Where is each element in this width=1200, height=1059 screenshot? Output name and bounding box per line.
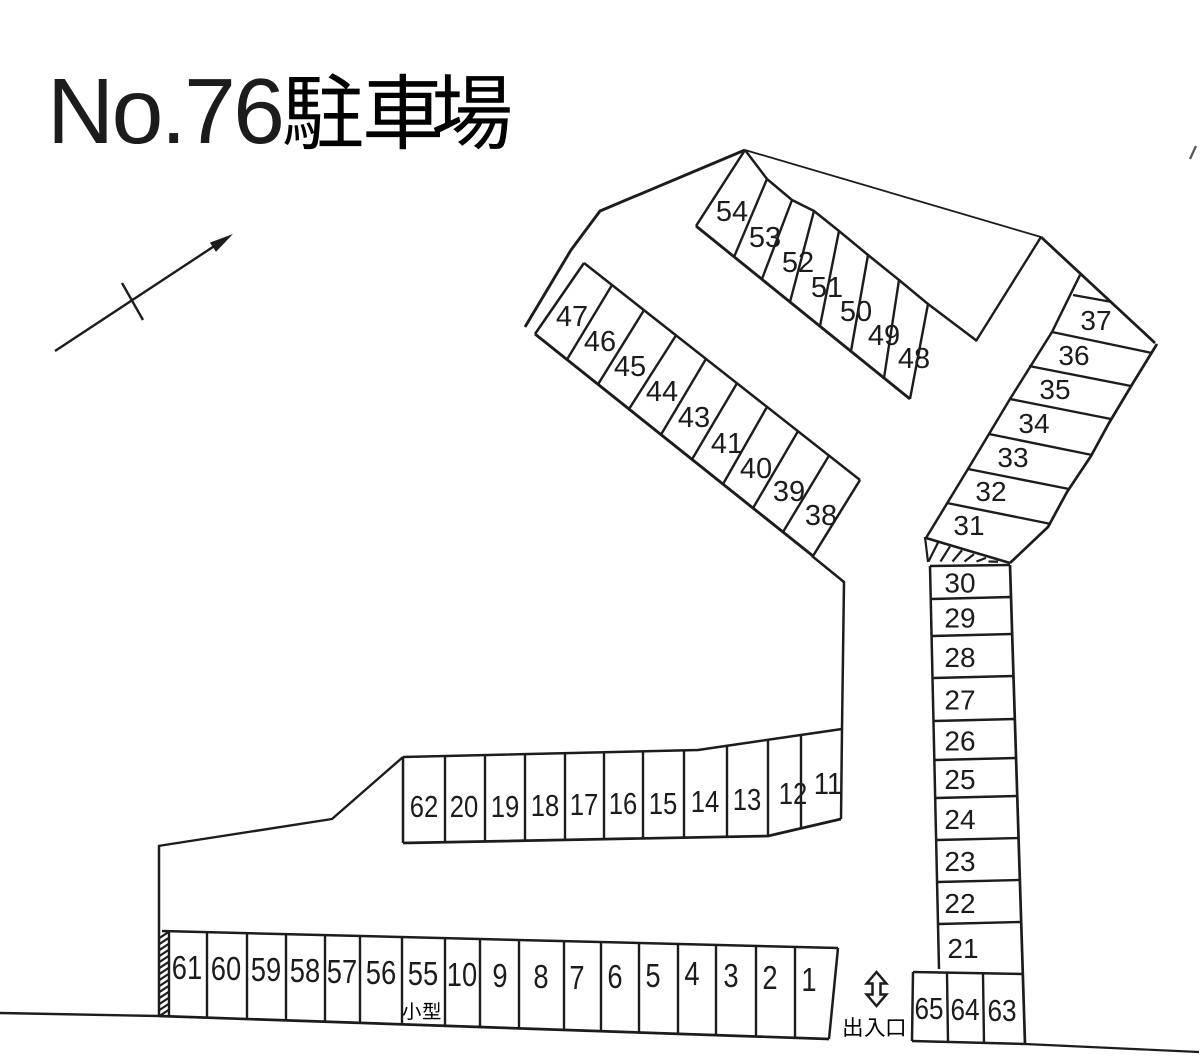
svg-text:28: 28 [944, 642, 975, 673]
svg-text:8: 8 [533, 958, 548, 995]
svg-text:61: 61 [172, 949, 202, 986]
svg-text:No.76: No.76 [47, 59, 285, 163]
svg-text:31: 31 [953, 510, 984, 541]
svg-text:58: 58 [290, 952, 320, 989]
svg-text:43: 43 [678, 402, 710, 434]
svg-text:9: 9 [492, 957, 507, 994]
svg-text:24: 24 [944, 804, 975, 835]
svg-text:16: 16 [609, 786, 638, 821]
svg-text:4: 4 [684, 955, 699, 992]
svg-text:33: 33 [997, 442, 1028, 473]
svg-text:7: 7 [569, 959, 584, 996]
svg-text:30: 30 [944, 568, 975, 599]
svg-text:19: 19 [491, 789, 520, 824]
svg-text:12: 12 [779, 776, 808, 811]
svg-text:44: 44 [646, 376, 678, 408]
svg-text:26: 26 [944, 726, 975, 757]
svg-text:38: 38 [805, 500, 837, 532]
svg-text:18: 18 [531, 788, 560, 823]
svg-text:51: 51 [811, 272, 843, 304]
svg-text:36: 36 [1058, 340, 1089, 371]
svg-text:2: 2 [762, 959, 777, 996]
svg-text:29: 29 [944, 603, 975, 634]
svg-text:62: 62 [410, 789, 439, 824]
svg-text:3: 3 [723, 957, 738, 994]
svg-text:41: 41 [711, 428, 743, 460]
svg-text:25: 25 [944, 764, 975, 795]
svg-text:40: 40 [740, 453, 772, 485]
svg-text:14: 14 [691, 784, 720, 819]
svg-text:17: 17 [570, 787, 599, 822]
svg-text:45: 45 [614, 351, 646, 383]
svg-text:13: 13 [733, 782, 762, 817]
svg-text:35: 35 [1039, 374, 1070, 405]
svg-text:32: 32 [975, 476, 1006, 507]
svg-text:1: 1 [801, 961, 816, 998]
svg-text:59: 59 [251, 951, 281, 988]
svg-text:55: 55 [408, 955, 438, 992]
svg-text:11: 11 [814, 766, 843, 801]
svg-text:34: 34 [1018, 408, 1049, 439]
svg-text:20: 20 [450, 789, 479, 824]
svg-text:5: 5 [645, 957, 660, 994]
svg-text:15: 15 [649, 786, 678, 821]
svg-text:60: 60 [211, 950, 241, 987]
svg-text:57: 57 [327, 953, 357, 990]
svg-text:56: 56 [366, 954, 396, 991]
svg-text:46: 46 [584, 326, 616, 358]
svg-text:27: 27 [944, 685, 975, 716]
svg-text:22: 22 [944, 888, 975, 919]
svg-text:63: 63 [987, 993, 1016, 1028]
svg-text:48: 48 [898, 343, 930, 375]
svg-text:39: 39 [773, 476, 805, 508]
svg-text:23: 23 [944, 846, 975, 877]
svg-text:49: 49 [868, 320, 900, 352]
svg-text:52: 52 [782, 247, 814, 279]
svg-text:54: 54 [716, 196, 748, 228]
svg-text:6: 6 [607, 958, 622, 995]
svg-text:64: 64 [950, 992, 979, 1027]
svg-text:21: 21 [947, 933, 978, 964]
svg-text:10: 10 [447, 956, 477, 993]
svg-text:65: 65 [914, 991, 943, 1026]
svg-text:37: 37 [1080, 305, 1111, 336]
svg-text:53: 53 [749, 222, 781, 254]
